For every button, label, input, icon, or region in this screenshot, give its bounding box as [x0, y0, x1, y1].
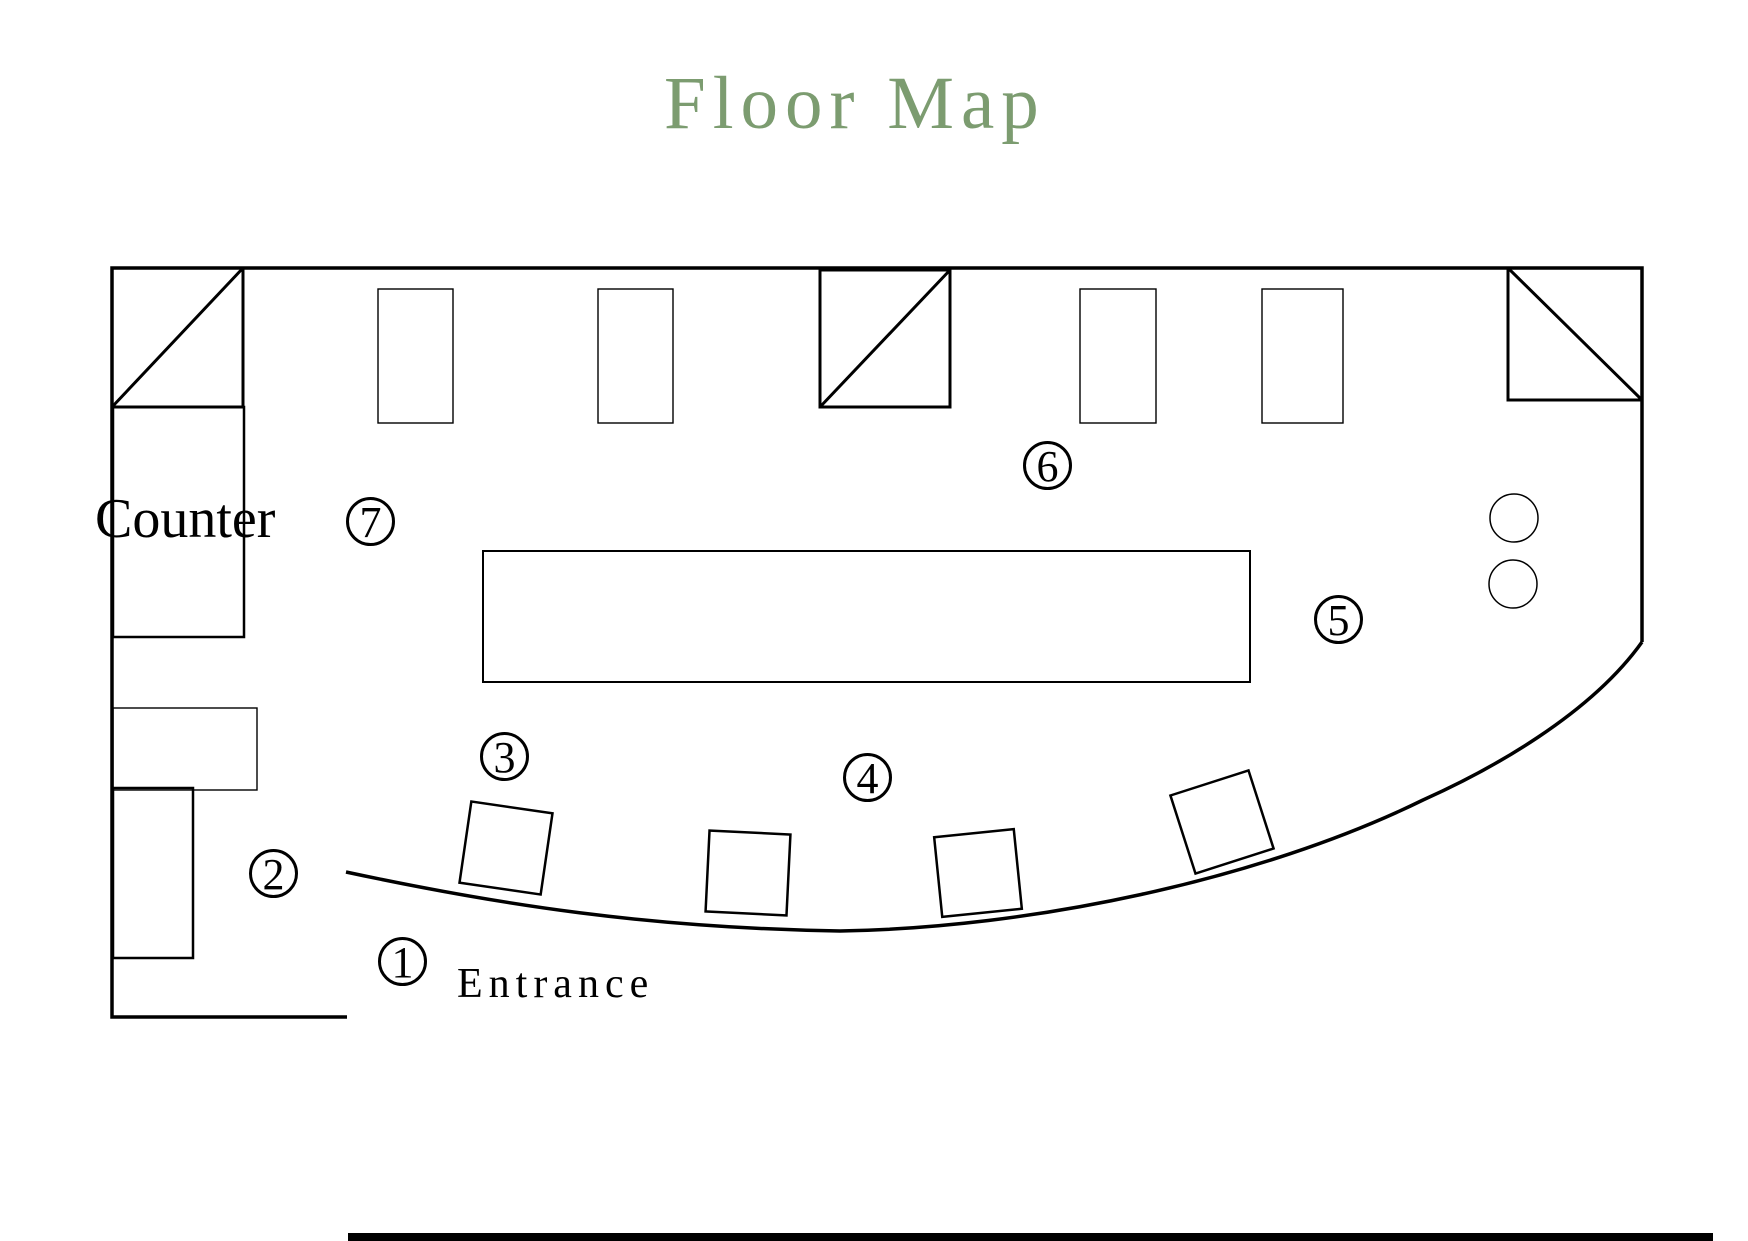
marker-4: 4 — [843, 753, 892, 802]
marker-7: 7 — [346, 497, 395, 546]
display-shelf-1 — [378, 289, 453, 423]
corner-fixture-top-right-diagonal — [1508, 268, 1642, 400]
marker-5-number: 5 — [1328, 597, 1350, 643]
display-shelf-2 — [598, 289, 673, 423]
display-shelf-4 — [1262, 289, 1343, 423]
marker-3: 3 — [480, 732, 529, 781]
marker-1-number: 1 — [392, 939, 414, 985]
marker-6-number: 6 — [1037, 443, 1059, 489]
display-shelf-3 — [1080, 289, 1156, 423]
rotated-table-1 — [460, 802, 553, 895]
side-shelf — [113, 708, 257, 790]
marker-2: 2 — [249, 849, 298, 898]
corner-fixture-top-left-diagonal — [112, 268, 243, 407]
center-display-table — [483, 551, 1250, 682]
stool-2 — [1489, 560, 1537, 608]
bottom-bar — [348, 1233, 1713, 1241]
rotated-table-4 — [1170, 770, 1273, 873]
floor-map-page: Floor Map Co — [0, 0, 1748, 1241]
rotated-table-2 — [706, 831, 791, 916]
stool-1 — [1490, 494, 1538, 542]
marker-2-number: 2 — [263, 851, 285, 897]
counter-label: Counter — [95, 491, 275, 547]
outer-wall — [112, 268, 1642, 1017]
side-fixture — [113, 788, 193, 958]
marker-3-number: 3 — [494, 734, 516, 780]
marker-1: 1 — [378, 937, 427, 986]
entrance-label: Entrance — [457, 963, 654, 1005]
marker-6: 6 — [1023, 441, 1072, 490]
floor-plan-drawing — [0, 0, 1748, 1241]
marker-7-number: 7 — [360, 499, 382, 545]
marker-5: 5 — [1314, 595, 1363, 644]
marker-4-number: 4 — [857, 755, 879, 801]
mid-diagonal-fixture-diagonal — [820, 270, 950, 407]
rotated-table-3 — [934, 829, 1022, 917]
